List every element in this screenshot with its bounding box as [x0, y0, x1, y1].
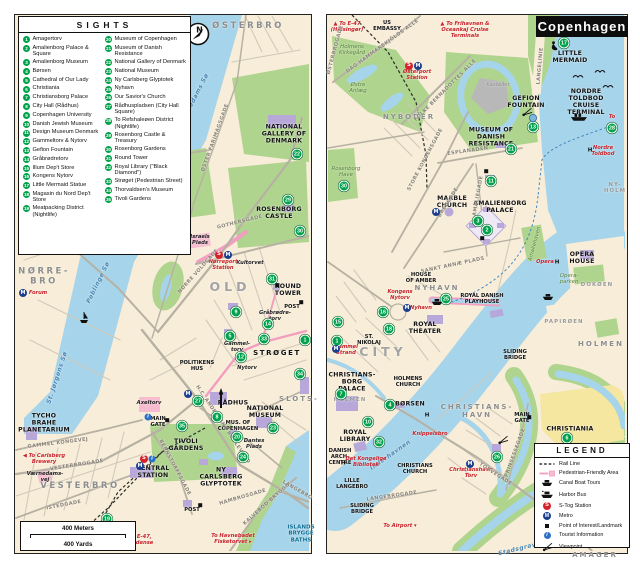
sight-number: 34: [105, 187, 112, 194]
legend-header: LEGEND: [535, 444, 629, 458]
sight-number: 9: [23, 112, 30, 119]
sight-label: Amagertorv: [33, 36, 62, 43]
sight-label: Christiania: [33, 85, 60, 92]
tourist-info-icon: i: [539, 532, 555, 539]
harbor-bus-icon: [539, 490, 555, 499]
legend-item-viewpoint: Viewpoint: [539, 542, 625, 552]
legend-label: Rail Line: [559, 461, 580, 467]
sight-label: Cathedral of Our Lady: [33, 77, 89, 84]
sight-item-18: 18Magasin du Nord Dep't Store: [23, 191, 105, 204]
s-tog-icon: S: [539, 502, 555, 510]
sight-item-14: 14Gråbrødretorv: [23, 156, 105, 163]
sight-label: City Hall (Rådhus): [33, 103, 79, 110]
sight-label: National Gallery of Denmark: [115, 59, 186, 66]
legend-panel: LEGEND Rail LinePedestrian-Friendly Area…: [534, 443, 630, 548]
sight-item-23: 23National Museum: [105, 68, 187, 75]
sight-number: 5: [23, 77, 30, 84]
legend-label: Harbor Bus: [559, 492, 586, 498]
sight-item-3: 3Amalienborg Museum: [23, 59, 105, 66]
legend-list: Rail LinePedestrian-Friendly AreaCanal B…: [535, 458, 629, 557]
sight-number: 35: [105, 196, 112, 203]
sight-item-24: 24Ny Carlsberg Glyptotek: [105, 77, 187, 84]
sight-number: 6: [23, 86, 30, 93]
sight-item-13: 13Gefion Fountain: [23, 147, 105, 154]
sight-label: Meatpacking District (Nightlife): [33, 205, 106, 218]
metro-icon: M: [539, 512, 555, 520]
sight-item-9: 9Copenhagen University: [23, 112, 105, 119]
sight-item-6: 6Christiania: [23, 85, 105, 92]
legend-item-metro: MMetro: [539, 512, 625, 520]
sight-number: 22: [105, 59, 112, 66]
sights-column-1: 1Amagertorv2Amalienborg Palace & Square3…: [23, 36, 105, 220]
sight-number: 33: [105, 178, 112, 185]
sight-number: 25: [105, 86, 112, 93]
sight-number: 14: [23, 156, 30, 163]
sight-item-22: 22National Gallery of Denmark: [105, 59, 187, 66]
sight-number: 32: [105, 164, 112, 171]
sight-number: 3: [23, 59, 30, 66]
sight-number: 2: [23, 45, 30, 52]
sight-number: 18: [23, 191, 30, 198]
sight-label: Little Mermaid Statue: [33, 182, 87, 189]
sight-label: To Refshaleøen District (Nightlife): [115, 117, 188, 130]
sight-item-16: 16Kongens Nytorv: [23, 173, 105, 180]
sight-item-35: 35Tivoli Gardens: [105, 196, 187, 203]
sight-item-20: 20Museum of Copenhagen: [105, 36, 187, 43]
metro-icon: M: [543, 512, 551, 520]
sight-number: 20: [105, 36, 112, 43]
sight-label: Copenhagen University: [33, 112, 92, 119]
info-icon: i: [544, 532, 551, 539]
legend-item-harbor-bus: Harbor Bus: [539, 490, 625, 499]
sight-number: 31: [105, 155, 112, 162]
legend-item-canal-boat-tours: Canal Boat Tours: [539, 479, 625, 487]
map-title: Copenhagen: [536, 16, 628, 37]
canal-boat-icon: [539, 479, 555, 487]
sight-number: 24: [105, 77, 112, 84]
sight-item-10: 10Danish Jewish Museum: [23, 121, 105, 128]
sight-item-30: 30Rosenborg Gardens: [105, 146, 187, 153]
sight-number: 4: [23, 68, 30, 75]
scale-bar: 400 Meters 400 Yards: [20, 521, 136, 551]
sight-number: 29: [105, 132, 112, 139]
sight-item-25: 25Nyhavn: [105, 85, 187, 92]
sight-number: 19: [23, 205, 30, 212]
sight-number: 1: [23, 36, 30, 43]
sight-number: 12: [23, 138, 30, 145]
sight-number: 11: [23, 130, 30, 137]
legend-label: Point of Interest/Landmark: [559, 523, 622, 529]
sight-item-11: 11Design Museum Denmark: [23, 129, 105, 136]
sight-item-15: 15Illum Dep't Store: [23, 165, 105, 172]
sight-item-12: 12Gammeltorv & Nytorv: [23, 138, 105, 145]
sight-number: 27: [105, 103, 112, 110]
sight-number: 30: [105, 146, 112, 153]
sight-number: 16: [23, 173, 30, 180]
sight-label: Thorvaldsen's Museum: [115, 187, 174, 194]
sights-header: SIGHTS: [19, 17, 190, 33]
legend-label: Canal Boat Tours: [559, 480, 600, 486]
sight-number: 23: [105, 68, 112, 75]
sights-list: 1Amagertorv2Amalienborg Palace & Square3…: [19, 33, 190, 220]
sight-label: Amalienborg Palace & Square: [33, 45, 106, 58]
sight-label: Magasin du Nord Dep't Store: [33, 191, 106, 204]
scale-yards: 400 Yards: [21, 538, 135, 550]
sight-item-28: 28To Refshaleøen District (Nightlife): [105, 117, 187, 130]
sight-item-21: 21Museum of Danish Resistance: [105, 45, 187, 58]
legend-label: Viewpoint: [559, 544, 582, 550]
sight-item-2: 2Amalienborg Palace & Square: [23, 45, 105, 58]
sight-label: Gefion Fountain: [33, 147, 73, 154]
sight-item-33: 33Strøget (Pedestrian Street): [105, 178, 187, 185]
sight-item-31: 31Round Tower: [105, 155, 187, 162]
sight-label: Royal Library ("Black Diamond"): [115, 164, 188, 177]
legend-label: Pedestrian-Friendly Area: [559, 470, 618, 476]
sight-label: Amalienborg Museum: [33, 59, 88, 66]
sight-number: 10: [23, 121, 30, 128]
sight-label: Gråbrødretorv: [33, 156, 69, 163]
scale-meters: 400 Meters: [21, 522, 135, 534]
sight-label: Nyhavn: [115, 85, 134, 92]
sights-panel: SIGHTS 1Amagertorv2Amalienborg Palace & …: [18, 16, 191, 255]
sight-label: Our Savior's Church: [115, 94, 166, 101]
sight-label: Illum Dep't Store: [33, 165, 75, 172]
sight-item-17: 17Little Mermaid Statue: [23, 182, 105, 189]
legend-label: Metro: [559, 513, 573, 519]
sight-label: Kongens Nytorv: [33, 173, 73, 180]
legend-label: S-Tog Station: [559, 503, 591, 509]
sight-number: 21: [105, 45, 112, 52]
rail-line-icon: [539, 461, 555, 467]
stog-icon: S: [543, 502, 551, 510]
sight-label: Børsen: [33, 68, 51, 75]
sight-item-19: 19Meatpacking District (Nightlife): [23, 205, 105, 218]
sight-number: 15: [23, 165, 30, 172]
copenhagen-map-page: ØSTERBRONØRRE- BROVESTERBROKØD- BYENSLOT…: [0, 0, 640, 568]
sight-label: Design Museum Denmark: [33, 129, 99, 136]
sight-item-27: 27Rådhuspladsen (City Hall Square): [105, 103, 187, 116]
legend-item-rail-line: Rail Line: [539, 461, 625, 467]
sight-label: Ny Carlsberg Glyptotek: [115, 77, 174, 84]
sight-label: Strøget (Pedestrian Street): [115, 178, 183, 185]
sight-number: 26: [105, 94, 112, 101]
legend-label: Tourist Information: [559, 532, 603, 538]
sight-item-1: 1Amagertorv: [23, 36, 105, 43]
sight-number: 8: [23, 103, 30, 110]
pedestrian-area-icon: [539, 470, 555, 477]
sight-number: 17: [23, 182, 30, 189]
sight-label: Round Tower: [115, 155, 148, 162]
sight-item-5: 5Cathedral of Our Lady: [23, 77, 105, 84]
sight-number: 13: [23, 147, 30, 154]
sight-label: Gammeltorv & Nytorv: [33, 138, 87, 145]
legend-item-point-of-interest-landmark: Point of Interest/Landmark: [539, 523, 625, 529]
sight-label: Rosenborg Gardens: [115, 146, 166, 153]
sight-item-32: 32Royal Library ("Black Diamond"): [105, 164, 187, 177]
sight-label: Museum of Copenhagen: [115, 36, 177, 43]
sights-column-2: 20Museum of Copenhagen21Museum of Danish…: [105, 36, 187, 220]
sight-label: Tivoli Gardens: [115, 196, 151, 203]
legend-item-tourist-information: iTourist Information: [539, 532, 625, 539]
sight-item-8: 8City Hall (Rådhus): [23, 103, 105, 110]
poi-icon: [539, 523, 555, 529]
sight-label: National Museum: [115, 68, 159, 75]
sight-item-4: 4Børsen: [23, 68, 105, 75]
sight-item-7: 7Christiansborg Palace: [23, 94, 105, 101]
sight-label: Rådhuspladsen (City Hall Square): [115, 103, 188, 116]
sight-item-29: 29Rosenborg Castle & Treasury: [105, 132, 187, 145]
sight-number: 7: [23, 94, 30, 101]
sight-label: Museum of Danish Resistance: [115, 45, 188, 58]
sight-label: Rosenborg Castle & Treasury: [115, 132, 188, 145]
legend-item-pedestrian-friendly-area: Pedestrian-Friendly Area: [539, 470, 625, 477]
legend-item-s-tog-station: SS-Tog Station: [539, 502, 625, 510]
sight-label: Christiansborg Palace: [33, 94, 89, 101]
sight-label: Danish Jewish Museum: [33, 121, 93, 128]
sight-item-34: 34Thorvaldsen's Museum: [105, 187, 187, 194]
viewpoint-icon: [539, 542, 555, 552]
sight-item-26: 26Our Savior's Church: [105, 94, 187, 101]
sight-number: 28: [105, 118, 112, 125]
